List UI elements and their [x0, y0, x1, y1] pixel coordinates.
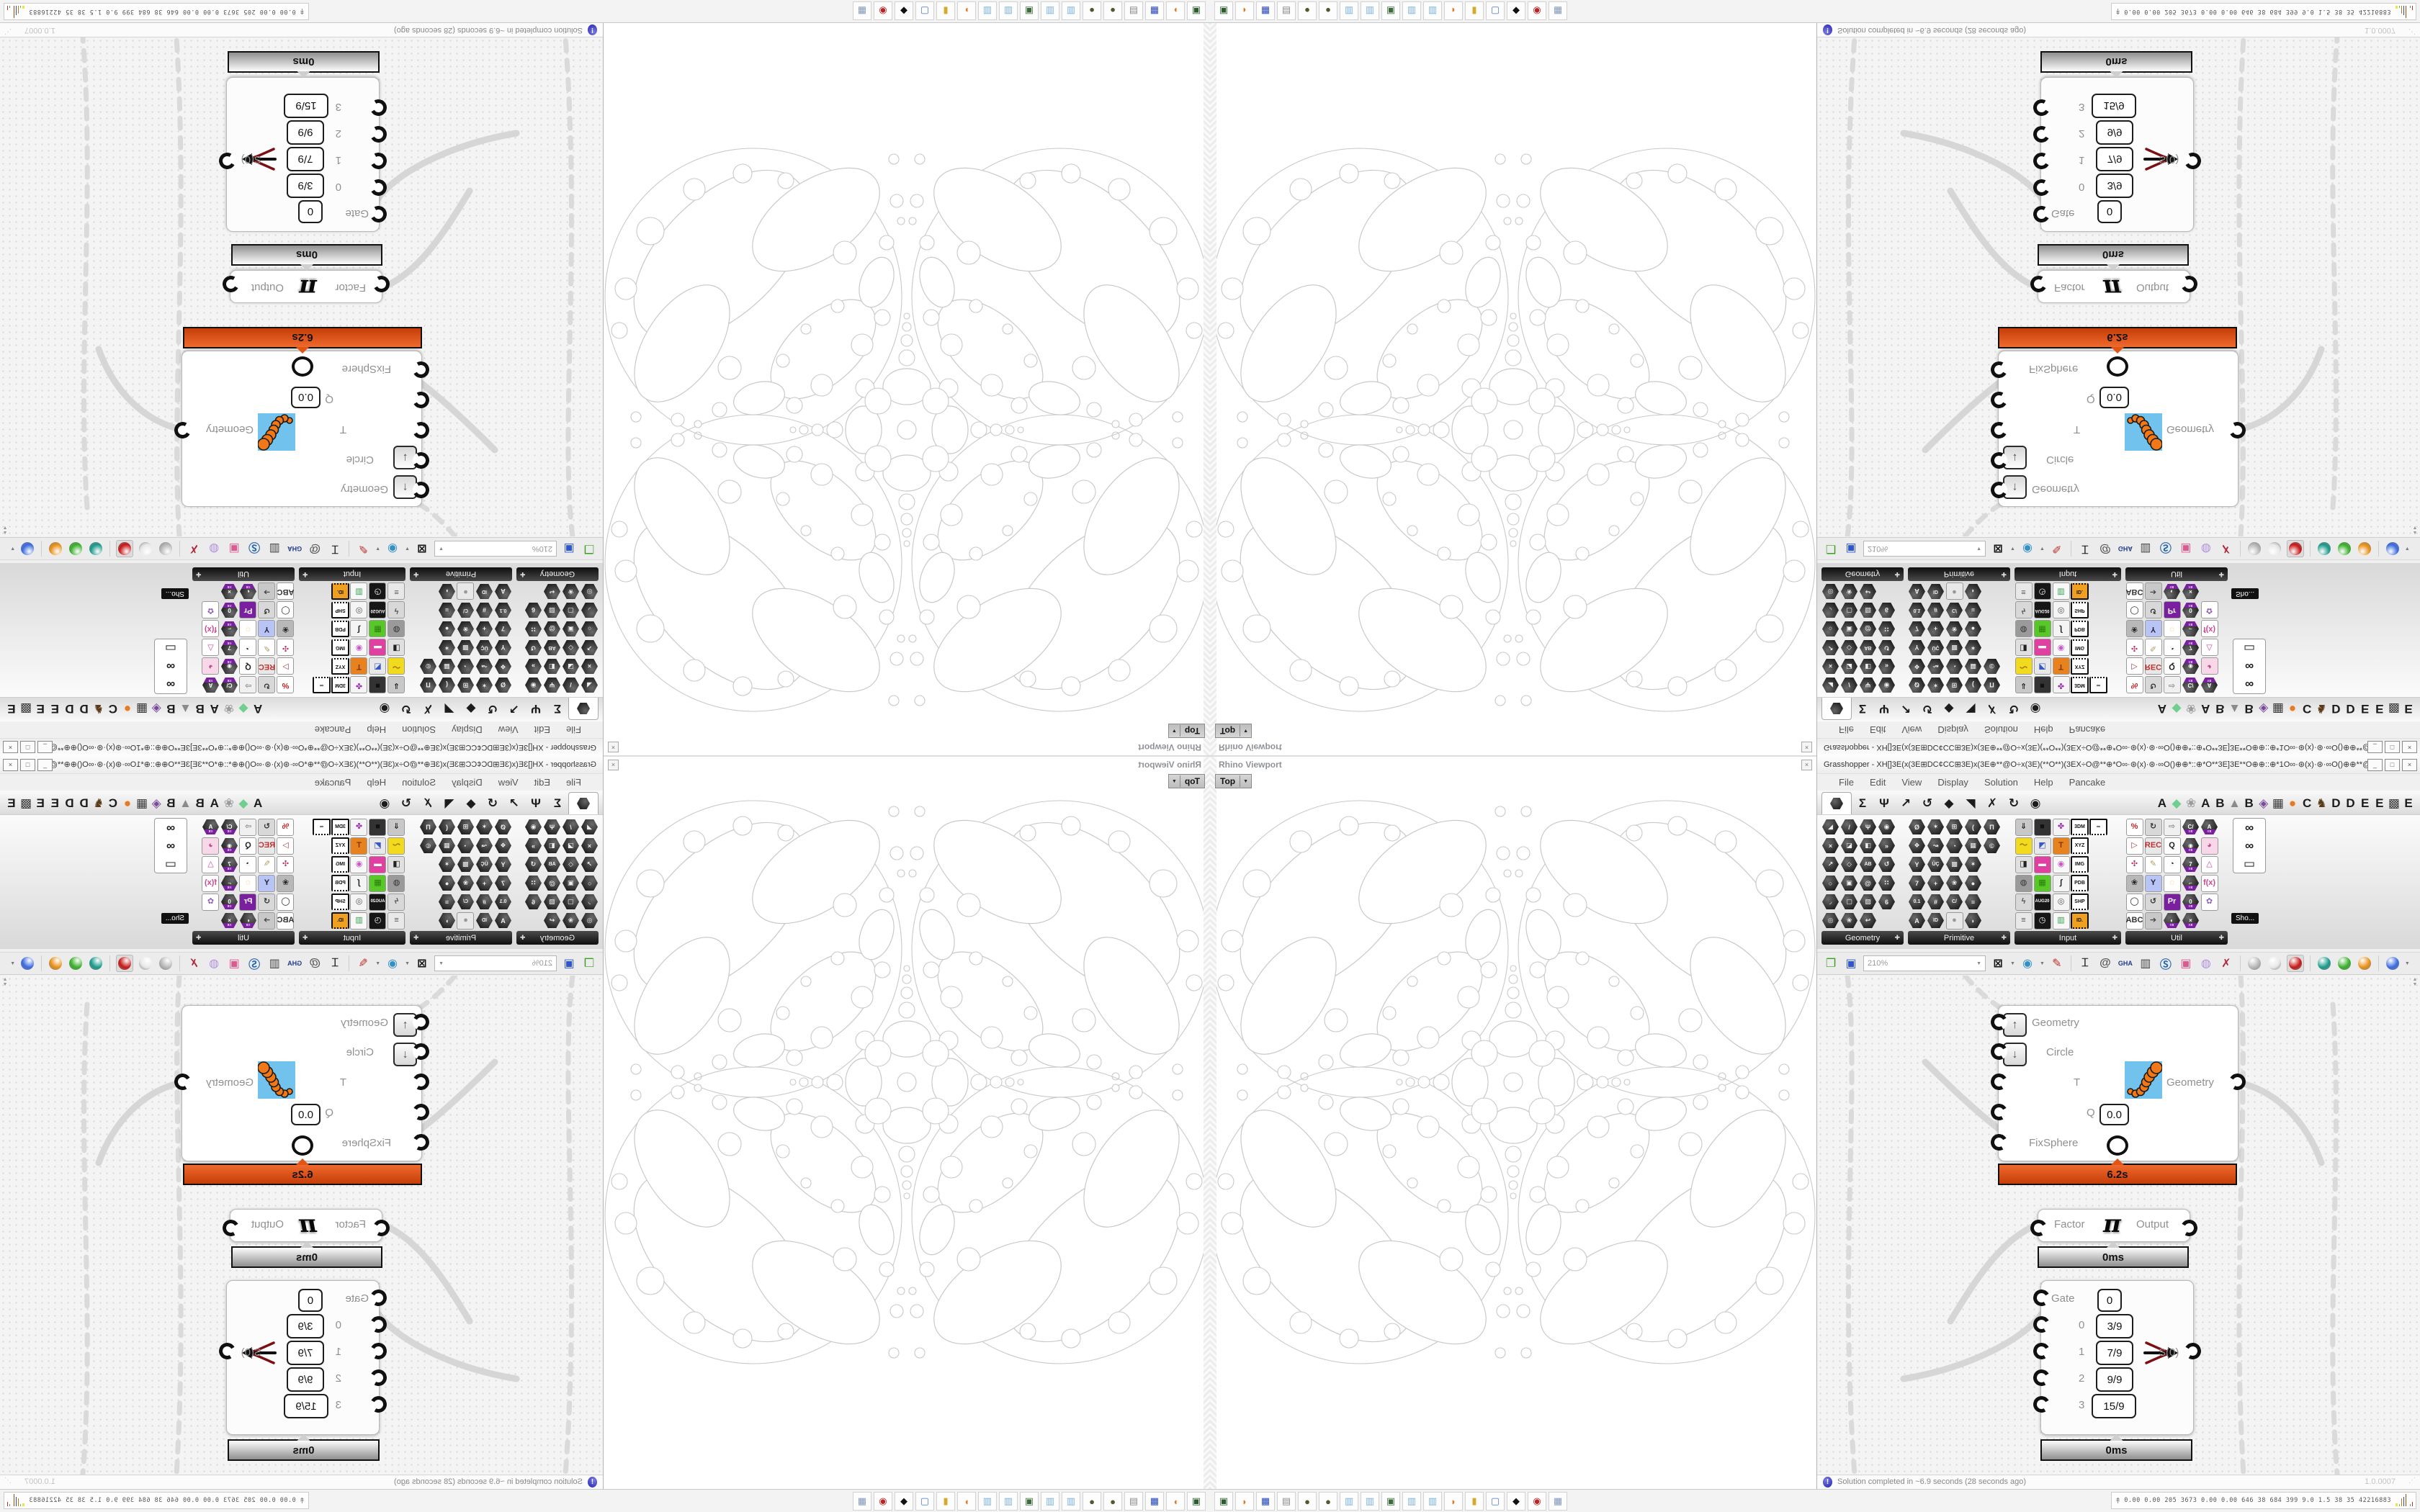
tab-transform[interactable]: ↻	[2003, 698, 2025, 719]
component-cell[interactable]: REC	[2144, 837, 2162, 855]
component-icon[interactable]: ◎	[351, 894, 368, 911]
component-cell[interactable]: ◨	[2015, 855, 2033, 873]
component-icon[interactable]: ▬	[2034, 856, 2051, 873]
component-cell[interactable]: ■	[369, 676, 387, 694]
gha-assembly-icon[interactable]: GHA	[2117, 955, 2133, 971]
component-cell[interactable]: ↗	[1821, 855, 1839, 873]
panel-title-util[interactable]: Util✚	[2125, 567, 2228, 581]
component-cell[interactable]: %	[2125, 818, 2143, 836]
popup-icon-1[interactable]: ∞	[2245, 840, 2254, 852]
component-cell[interactable]: ↗	[581, 855, 599, 873]
ribbons-icon[interactable]: ✗	[2218, 541, 2234, 557]
component-cell[interactable]: ≡	[438, 893, 456, 911]
panel-title-input[interactable]: Input✚	[2015, 931, 2121, 945]
plugin-tab-13[interactable]: D	[2344, 701, 2358, 716]
component-cell[interactable]: ↺	[524, 639, 542, 657]
component-icon[interactable]: f(x)	[2201, 621, 2218, 638]
component-cell[interactable]: ❀	[2125, 620, 2143, 638]
component-icon[interactable]: ✣	[277, 639, 295, 657]
chevron-down-icon[interactable]: ▼	[375, 546, 380, 552]
internalise-icon[interactable]: @	[307, 541, 323, 557]
component-icon[interactable]: ■	[369, 677, 387, 694]
app-computer-icon[interactable]: ▢	[915, 1492, 934, 1511]
tab-transform[interactable]: ↻	[2003, 793, 2025, 814]
component-icon[interactable]: ◔	[457, 659, 474, 674]
component-cell[interactable]: ◪	[562, 657, 580, 675]
component-icon[interactable]: ©	[420, 838, 436, 853]
preview-eye-icon[interactable]: ◉	[385, 541, 400, 557]
component-icon[interactable]: 7	[2182, 857, 2199, 872]
component-icon[interactable]: ◢	[581, 678, 598, 693]
component-cell[interactable]: SHP	[331, 893, 349, 911]
component-cell[interactable]: 7	[1908, 874, 1926, 892]
gate-row-value-box[interactable]: 3/9	[287, 1314, 324, 1338]
component-cell[interactable]: T	[2052, 657, 2070, 675]
component-cell[interactable]: ×	[581, 837, 599, 855]
minimize-button[interactable]: _	[37, 759, 53, 771]
app-floppy-icon[interactable]: ▦	[1145, 1, 1164, 20]
component-cell[interactable]: SHP	[331, 601, 349, 619]
component-cell[interactable]: ABC	[277, 912, 295, 930]
component-icon[interactable]: ◉	[2182, 659, 2199, 674]
component-icon[interactable]: ❀	[2126, 621, 2143, 638]
component-icon[interactable]: 〜	[2015, 837, 2033, 855]
plugin-tab-11[interactable]: ♞	[2314, 796, 2329, 811]
component-icon[interactable]: ❀	[563, 584, 579, 599]
component-cell[interactable]: ▦	[369, 874, 387, 892]
tab-surface[interactable]: ◆	[460, 793, 482, 814]
component-cell[interactable]: ▥	[350, 912, 368, 930]
component-cell[interactable]: ∞	[313, 676, 331, 694]
component-icon[interactable]: ◐	[2164, 584, 2180, 599]
app-blob-icon[interactable]: ●	[1103, 1492, 1122, 1511]
component-icon[interactable]: ▷	[2126, 837, 2143, 855]
component-icon[interactable]: 0	[2182, 894, 2199, 909]
component-cell[interactable]: /	[1840, 676, 1858, 694]
plugin-tab-7[interactable]: ◈	[149, 796, 163, 811]
component-icon[interactable]: ✤	[351, 677, 368, 694]
component-icon[interactable]: ©	[420, 659, 436, 674]
popup-icon-1[interactable]: ∞	[166, 840, 175, 852]
component-cell[interactable]: T	[350, 657, 368, 675]
component-icon[interactable]: ◞	[1822, 894, 1839, 909]
component-cell[interactable]: 6	[1878, 893, 1896, 911]
component-cell[interactable]: ◧	[1859, 657, 1877, 675]
gate-row-value-box[interactable]: 15/9	[2092, 94, 2136, 118]
component-cell[interactable]: ◗	[1964, 582, 1982, 600]
plugin-tab-11[interactable]: ♞	[91, 701, 106, 716]
component-icon[interactable]: ■	[369, 819, 387, 836]
component-icon[interactable]: ◞	[581, 603, 598, 618]
plugin-tab-13[interactable]: D	[63, 796, 77, 811]
component-icon[interactable]: ◧	[1860, 838, 1876, 853]
component-icon[interactable]: ↝	[1927, 838, 1944, 853]
app-notepad-icon[interactable]: ▥	[1423, 1492, 1442, 1511]
component-icon[interactable]: XYZ	[331, 658, 349, 675]
component-cell[interactable]: ↝	[1927, 657, 1945, 675]
component-cell[interactable]: ✶	[1964, 855, 1982, 873]
component-icon[interactable]: ∫	[351, 621, 368, 638]
component-cell[interactable]: ◪	[1840, 837, 1858, 855]
plugin-tab-2[interactable]: ❀	[222, 796, 236, 811]
plugin-tab-2[interactable]: ❀	[2184, 796, 2198, 811]
component-icon[interactable]: REC	[2145, 658, 2162, 675]
component-icon[interactable]: ❀	[1841, 913, 1857, 928]
component-icon[interactable]: ▦	[1965, 659, 1981, 674]
pi-component[interactable]: Factor π Output	[2038, 1209, 2190, 1242]
component-icon[interactable]: ↻	[2145, 819, 2162, 836]
component-cell[interactable]: Y	[1908, 639, 1926, 657]
component-cell[interactable]: ×	[2182, 912, 2200, 930]
component-cell[interactable]: 0.1	[494, 601, 512, 619]
component-icon[interactable]: ✿	[202, 894, 220, 911]
component-cell[interactable]: ∫	[2052, 874, 2070, 892]
component-cell[interactable]: 6	[524, 601, 542, 619]
component-cell[interactable]: ▢	[1840, 601, 1858, 619]
component-cell[interactable]: ◌	[2163, 620, 2181, 638]
component-cell[interactable]: f(x)	[202, 620, 220, 638]
component-icon[interactable]: ◔	[2164, 856, 2181, 873]
component-icon[interactable]: ◞	[1822, 603, 1839, 618]
component-icon[interactable]: XYZ	[2071, 837, 2089, 854]
component-cell[interactable]: ×	[220, 582, 238, 600]
component-icon[interactable]: ABC	[2126, 912, 2143, 930]
component-icon[interactable]: ↩	[1860, 913, 1876, 928]
save-file-icon[interactable]: ▣	[561, 955, 577, 971]
component-icon[interactable]: Ψ	[544, 678, 560, 693]
component-cell[interactable]: ⇓	[387, 676, 405, 694]
component-cell[interactable]: +	[1927, 620, 1945, 638]
plugin-tab-6[interactable]: B	[163, 796, 178, 811]
component-cell[interactable]: ↺	[258, 601, 276, 619]
component-icon[interactable]: A	[2201, 678, 2218, 693]
component-cell[interactable]: ✣	[2125, 639, 2143, 657]
component-icon[interactable]: ▣	[563, 876, 579, 891]
component-cell[interactable]: Pr	[239, 893, 257, 911]
component-cell[interactable]: ϟ	[2015, 601, 2033, 619]
plugin-tab-16[interactable]: ▩	[2387, 701, 2401, 716]
rhino-viewport[interactable]: Rhino Viewport × Top ▼	[1210, 22, 1816, 756]
component-cell[interactable]: ●	[1964, 874, 1982, 892]
component-cell[interactable]: ✎	[258, 639, 276, 657]
plugin-tab-16[interactable]: ▩	[19, 701, 33, 716]
component-icon[interactable]: △	[2201, 639, 2218, 657]
component-cell[interactable]: ◎	[1821, 582, 1839, 600]
component-cell[interactable]: ∷	[524, 620, 542, 638]
component-cell[interactable]: ↻	[2144, 818, 2162, 836]
chevron-down-icon[interactable]: ▼	[2010, 546, 2015, 552]
tab-display[interactable]: ◉	[374, 698, 395, 719]
canvas-scroll-arrows[interactable]: ▲▼	[1, 519, 9, 535]
component-cell[interactable]: »	[1878, 837, 1896, 855]
preview-eye-icon[interactable]: ◉	[2020, 955, 2035, 971]
component-cell[interactable]: Pr	[2163, 893, 2181, 911]
gate-value-box[interactable]: 0	[298, 200, 323, 223]
component-icon[interactable]: ID	[1927, 584, 1944, 599]
component-cell[interactable]: ▨	[1859, 601, 1877, 619]
component-cell[interactable]: %	[2125, 676, 2143, 694]
component-icon[interactable]: Pr	[240, 894, 257, 911]
component-cell[interactable]: ◉	[350, 639, 368, 657]
component-icon[interactable]: ▣	[563, 621, 579, 636]
component-cell[interactable]: T	[350, 837, 368, 855]
component-cell[interactable]: ▩	[457, 639, 475, 657]
component-cell[interactable]: ÜÇ	[475, 855, 493, 873]
component-icon[interactable]: Y	[495, 857, 511, 872]
component-cell[interactable]: 0	[2182, 601, 2200, 619]
component-cell[interactable]: ✶	[438, 855, 456, 873]
component-icon[interactable]: ▢	[1841, 894, 1857, 909]
component-cell[interactable]: IMG	[331, 855, 349, 873]
component-cell[interactable]: △	[2200, 639, 2218, 657]
plugin-tab-1[interactable]: ◆	[2169, 701, 2184, 716]
component-cell[interactable]: A	[2200, 818, 2218, 836]
app-firefox-icon[interactable]: ◗	[1166, 1492, 1185, 1511]
gate-row-value-box[interactable]: 9/9	[287, 1367, 324, 1392]
component-cell[interactable]: ↩	[543, 912, 561, 930]
sketch-pen-icon[interactable]: ✎	[355, 955, 371, 971]
component-icon[interactable]: ❀	[457, 876, 474, 891]
component-icon[interactable]: ◪	[563, 659, 579, 674]
component-cell[interactable]: (	[1964, 676, 1982, 694]
component-icon[interactable]: C/	[1946, 894, 1963, 909]
component-icon[interactable]: ✎	[2145, 856, 2162, 873]
component-cell[interactable]: ∷	[524, 874, 542, 892]
component-icon[interactable]: ◔	[1946, 659, 1963, 674]
component-icon[interactable]: Y	[259, 621, 276, 638]
component-cell[interactable]: ×	[220, 912, 238, 930]
component-icon[interactable]: ↗	[1822, 640, 1839, 655]
component-icon[interactable]: Pr	[240, 602, 257, 619]
component-icon[interactable]: /	[1841, 678, 1857, 693]
component-cell[interactable]: ◇	[1840, 639, 1858, 657]
component-icon[interactable]: ◢	[581, 819, 598, 834]
red-gem-icon[interactable]	[116, 540, 133, 557]
component-cell[interactable]: ◷	[369, 582, 387, 600]
ring-gem-icon[interactable]	[2267, 541, 2282, 557]
component-icon[interactable]: ▷	[277, 658, 295, 675]
plugin-tab-0[interactable]: A	[251, 796, 265, 811]
component-icon[interactable]: ●	[457, 583, 475, 600]
component-icon[interactable]: ◯	[277, 602, 295, 619]
component-cell[interactable]: #	[475, 601, 493, 619]
menu-item-edit[interactable]: Edit	[1870, 725, 1886, 736]
component-icon[interactable]: ✶	[439, 857, 455, 872]
component-icon[interactable]: ◧	[544, 838, 560, 853]
app-notepad-icon[interactable]: ▥	[1340, 1492, 1358, 1511]
component-icon[interactable]: ↺	[259, 602, 276, 619]
component-cell[interactable]: ◉	[524, 676, 542, 694]
component-icon[interactable]: A	[1909, 584, 1925, 599]
component-cell[interactable]: Pr	[239, 601, 257, 619]
component-cell[interactable]: A	[494, 582, 512, 600]
panel-title-geometry[interactable]: Geometry✚	[1821, 567, 1904, 581]
component-cell[interactable]: ID	[475, 582, 493, 600]
component-icon[interactable]: ↩	[544, 913, 560, 928]
component-cell[interactable]: ▷	[277, 657, 295, 675]
component-icon[interactable]: ∞	[2089, 819, 2107, 835]
component-icon[interactable]: ϟ	[2015, 894, 2033, 911]
component-cell[interactable]: ×	[2182, 582, 2200, 600]
tab-vector[interactable]: ↗	[503, 793, 525, 814]
component-cell[interactable]: ◔	[457, 657, 475, 675]
component-cell[interactable]: ◢	[581, 676, 599, 694]
menu-item-pancake[interactable]: Pancake	[315, 777, 351, 788]
component-cell[interactable]: ◕	[2200, 657, 2218, 675]
component-cell[interactable]: ◔	[457, 837, 475, 855]
component-icon[interactable]: ↺	[525, 857, 542, 872]
component-icon[interactable]: 7	[495, 876, 511, 891]
ring-gem-icon[interactable]	[2267, 955, 2282, 971]
component-icon[interactable]: f(x)	[202, 875, 220, 892]
component-icon[interactable]: ×	[2182, 584, 2199, 599]
component-icon[interactable]: ID	[476, 913, 493, 928]
component-cell[interactable]: ◔	[1945, 837, 1963, 855]
component-icon[interactable]: +	[476, 621, 493, 636]
app-notepad-icon[interactable]: ▥	[978, 1, 997, 20]
component-cell[interactable]: ●	[1964, 620, 1982, 638]
component-icon[interactable]: ◐	[240, 913, 256, 928]
component-cell[interactable]: ●	[457, 582, 475, 600]
component-cell[interactable]: ✣	[2125, 855, 2143, 873]
component-cell[interactable]: A	[202, 676, 220, 694]
app-black-icon[interactable]: ◆	[1507, 1, 1525, 20]
component-icon[interactable]: ◎	[2053, 602, 2070, 619]
component-icon[interactable]: ABC	[277, 912, 295, 930]
gh-titlebar[interactable]: Grasshopper - XH[]3E(x(3E⊞DC¢CC⊞3E)x(3E⊕…	[1817, 756, 2420, 774]
close-button[interactable]: ×	[3, 741, 18, 753]
component-icon[interactable]: ◪	[1841, 659, 1857, 674]
component-cell[interactable]: ◐	[2163, 582, 2181, 600]
gh-titlebar[interactable]: Grasshopper - XH[]3E(x(3E⊞DC¢CC⊞3E)x(3E⊕…	[0, 738, 603, 756]
component-icon[interactable]: ◉	[2053, 639, 2070, 657]
app-notepad-icon[interactable]: ▥	[1361, 1492, 1379, 1511]
gate-row-value-box[interactable]: 9/9	[287, 120, 324, 145]
component-cell[interactable]: AB	[543, 855, 561, 873]
component-cell[interactable]: XYZ	[331, 837, 349, 855]
plugin-tab-7[interactable]: ◈	[2257, 701, 2271, 716]
viewport-projection-button[interactable]: Top ▼	[1168, 774, 1205, 788]
preview-eye-icon[interactable]: ◉	[2020, 541, 2035, 557]
component-icon[interactable]: ▢	[563, 603, 579, 618]
component-cell[interactable]: ↺	[258, 893, 276, 911]
component-icon[interactable]: ID.	[2071, 583, 2089, 600]
component-icon[interactable]: ❀	[1946, 876, 1963, 891]
menu-item-pancake[interactable]: Pancake	[2069, 725, 2106, 736]
component-icon[interactable]: ID.	[2071, 912, 2089, 929]
menu-item-file[interactable]: File	[1839, 725, 1854, 736]
component-icon[interactable]: ▨	[1860, 894, 1876, 909]
component-cell[interactable]: »	[524, 657, 542, 675]
component-icon[interactable]: /	[1841, 819, 1857, 834]
component-cell[interactable]: f(x)	[202, 874, 220, 892]
gate-row-value-box[interactable]: 3/9	[2096, 174, 2133, 198]
component-icon[interactable]: ✿	[2201, 894, 2218, 911]
component-icon[interactable]: ◎	[2053, 894, 2070, 911]
component-cell[interactable]: A	[1908, 912, 1926, 930]
component-icon[interactable]: ≡	[1965, 894, 1981, 909]
component-icon[interactable]: XYZ	[2071, 658, 2089, 675]
tab-display[interactable]: ◉	[374, 793, 395, 814]
component-cell[interactable]: ◔	[239, 639, 257, 657]
component-cell[interactable]: ✎	[2144, 855, 2162, 873]
component-cell[interactable]: »	[524, 837, 542, 855]
stone-gem-icon[interactable]	[2246, 955, 2262, 971]
component-icon[interactable]: 0.1	[495, 603, 511, 618]
plugin-tab-2[interactable]: ❀	[222, 701, 236, 716]
component-icon[interactable]: ▬	[2034, 639, 2051, 657]
component-icon[interactable]: ◉	[1878, 678, 1895, 693]
component-cell[interactable]: ❖	[494, 837, 512, 855]
component-icon[interactable]: ✶	[1965, 857, 1981, 872]
component-icon[interactable]: ◉	[525, 819, 542, 834]
component-icon[interactable]: ◎	[351, 602, 368, 619]
component-cell[interactable]: ID	[1927, 912, 1945, 930]
component-icon[interactable]: A	[202, 819, 219, 834]
tab-display[interactable]: ◉	[2025, 793, 2046, 814]
widget-icon[interactable]: ⌶	[327, 955, 343, 971]
component-cell[interactable]: ◔	[2163, 639, 2181, 657]
component-cell[interactable]: %	[277, 676, 295, 694]
component-icon[interactable]: ◩	[2034, 658, 2051, 675]
component-icon[interactable]: ↺	[2145, 894, 2162, 911]
component-icon[interactable]: T	[2053, 658, 2070, 675]
component-icon[interactable]: ●	[457, 912, 475, 930]
component-icon[interactable]: ↺	[525, 640, 542, 655]
component-cell[interactable]: ◷	[369, 912, 387, 930]
app-folder-icon[interactable]: ▮	[936, 1492, 955, 1511]
component-icon[interactable]: ⇓	[388, 819, 405, 836]
blue-gem-icon[interactable]	[2385, 955, 2401, 971]
app-computer-icon[interactable]: ▢	[1486, 1492, 1505, 1511]
component-cell[interactable]: ©	[1983, 657, 2001, 675]
component-icon[interactable]: AB	[544, 857, 560, 872]
component-cell[interactable]: ↺	[524, 855, 542, 873]
component-icon[interactable]: ❖	[1909, 659, 1925, 674]
viewport-close-icon[interactable]: ×	[608, 742, 619, 752]
finder-icon[interactable]: Ⓢ	[2158, 541, 2174, 557]
component-icon[interactable]: 〜	[388, 837, 405, 855]
app-notepad-icon[interactable]: ▥	[1062, 1, 1080, 20]
plugin-tab-17[interactable]: E	[4, 701, 19, 716]
component-icon[interactable]: ↻	[2145, 677, 2162, 694]
component-cell[interactable]: Y	[2144, 620, 2162, 638]
minimize-button[interactable]: _	[2367, 741, 2383, 753]
component-icon[interactable]: f(x)	[202, 621, 220, 638]
gate-row-value-box[interactable]: 15/9	[2092, 1394, 2136, 1418]
component-cell[interactable]: ✤	[2052, 818, 2070, 836]
component-cell[interactable]: ❀	[1840, 582, 1858, 600]
component-icon[interactable]: Ψ	[544, 819, 560, 834]
component-cell[interactable]: ×	[1821, 657, 1839, 675]
component-icon[interactable]: ▩	[1946, 640, 1963, 655]
component-cell[interactable]: ❀	[1840, 912, 1858, 930]
component-icon[interactable]: ∷	[1878, 621, 1895, 636]
component-icon[interactable]: ❖	[495, 659, 511, 674]
component-icon[interactable]: Ø	[495, 678, 511, 693]
ribbons-icon[interactable]: ✗	[186, 955, 202, 971]
component-icon[interactable]: (	[439, 819, 455, 834]
component-icon[interactable]: ∷	[525, 621, 542, 636]
rhino-viewport[interactable]: Rhino Viewport × Top ▼	[604, 756, 1210, 1490]
component-cell[interactable]: ∞	[2089, 818, 2107, 836]
component-icon[interactable]: ◇	[563, 640, 579, 655]
plugin-tab-17[interactable]: E	[4, 796, 19, 811]
component-cell[interactable]: ▨	[543, 893, 561, 911]
plugin-tab-15[interactable]: E	[33, 701, 48, 716]
component-cell[interactable]: ❀	[277, 874, 295, 892]
q-value-box[interactable]: 0.0	[2099, 387, 2129, 408]
